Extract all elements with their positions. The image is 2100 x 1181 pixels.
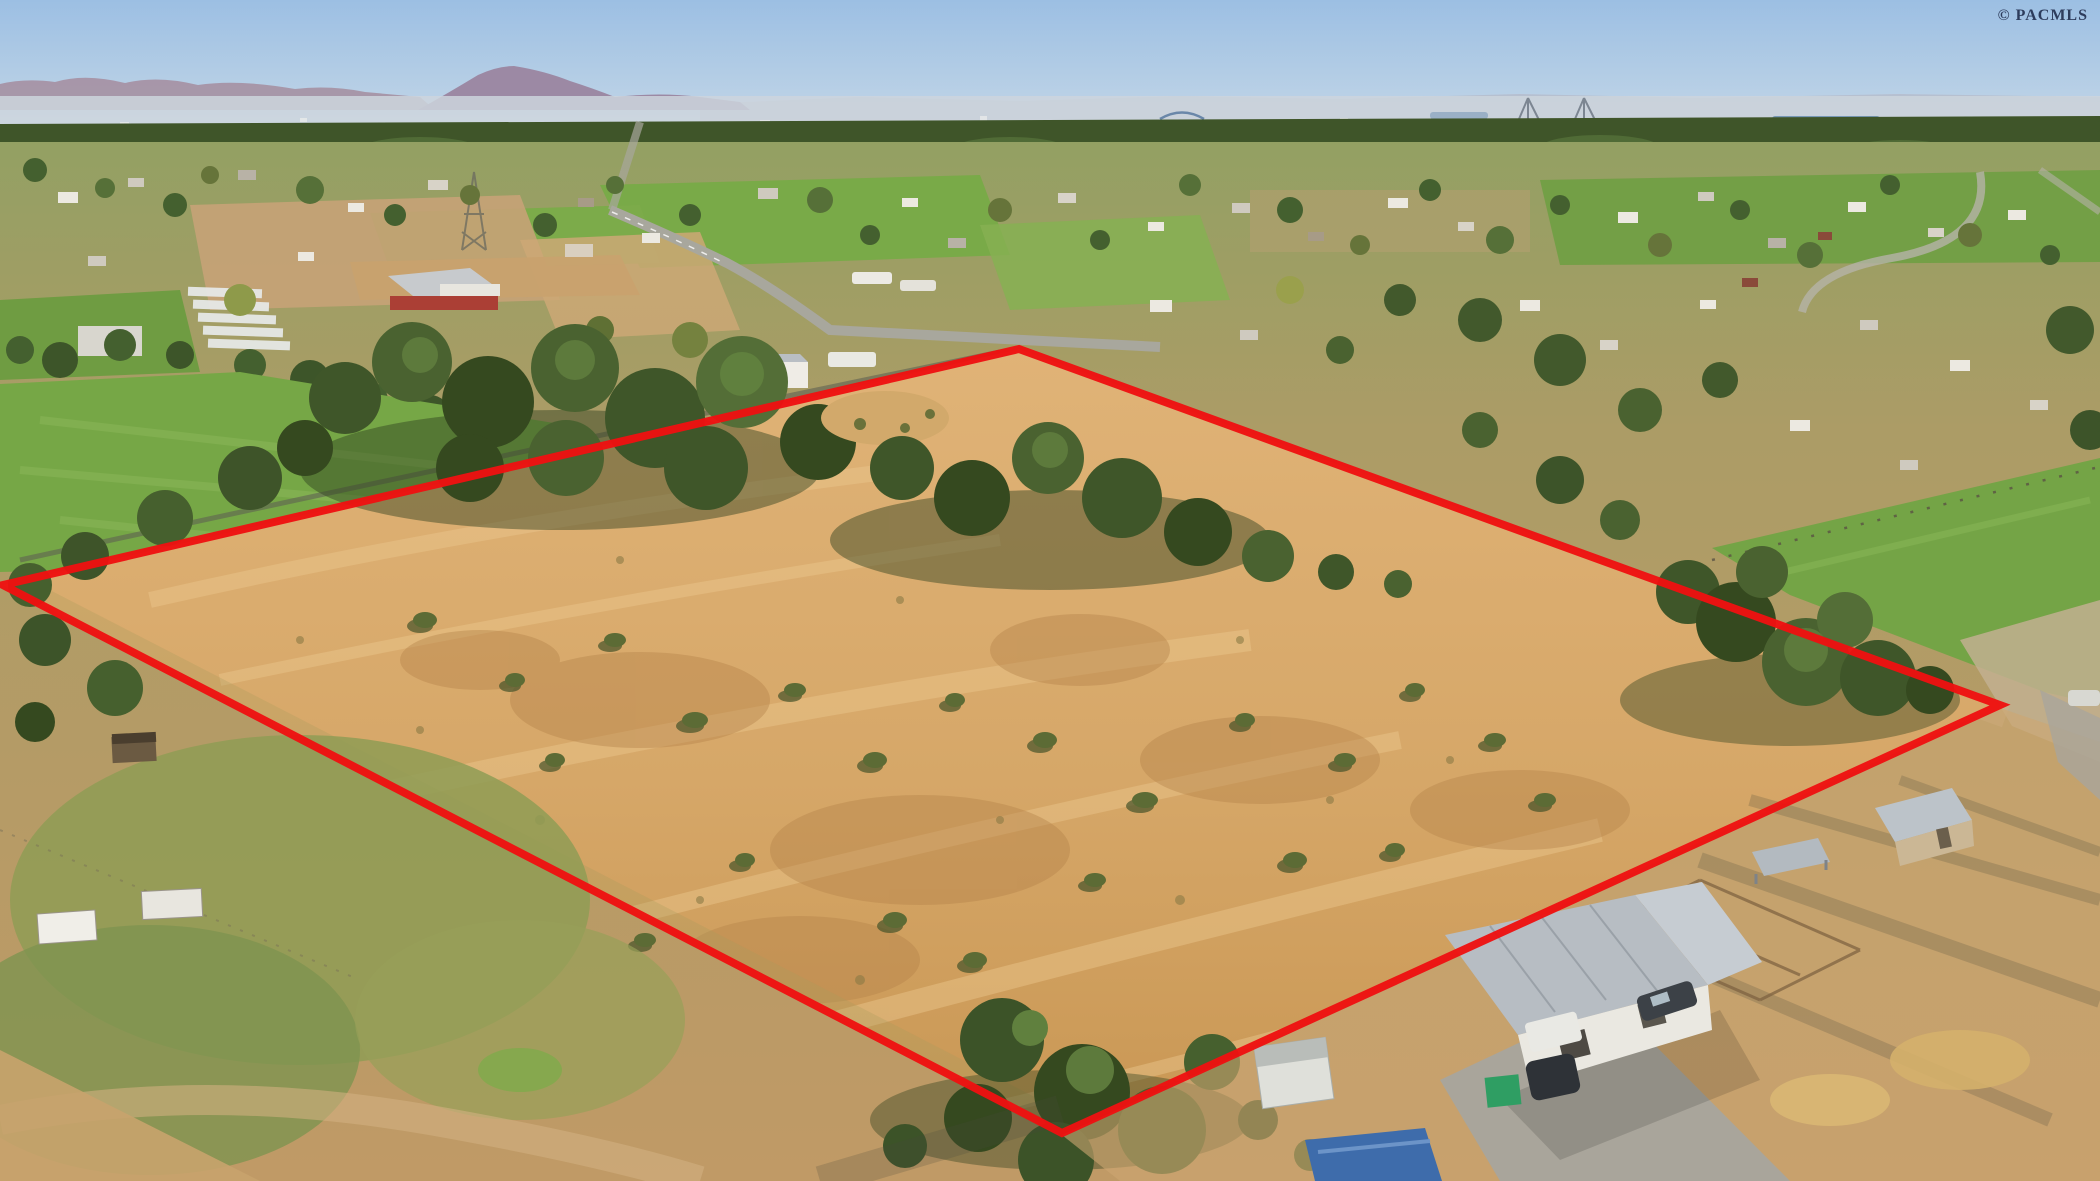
aerial-photo-canvas bbox=[0, 0, 2100, 1181]
hay-pile bbox=[1770, 1074, 1890, 1126]
river-water-far bbox=[1430, 112, 1488, 119]
dumpster bbox=[1485, 1074, 1522, 1107]
hay-pile-2 bbox=[1890, 1030, 2030, 1090]
aerial-photo: © PACMLS bbox=[0, 0, 2100, 1181]
watermark: © PACMLS bbox=[1998, 7, 2088, 25]
storage-container bbox=[1254, 1037, 1334, 1108]
